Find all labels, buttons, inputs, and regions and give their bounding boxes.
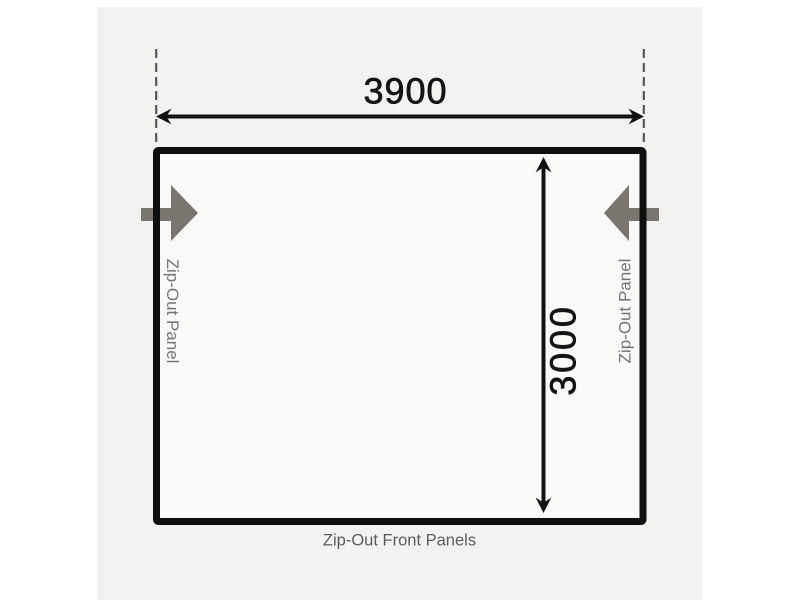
svg-text:3900: 3900 — [363, 71, 447, 112]
svg-text:Zip-Out Panel: Zip-Out Panel — [616, 259, 635, 364]
svg-text:Zip-Out Panel: Zip-Out Panel — [163, 259, 182, 364]
svg-text:3000: 3000 — [543, 304, 584, 395]
svg-text:Zip-Out Front Panels: Zip-Out Front Panels — [323, 532, 476, 550]
